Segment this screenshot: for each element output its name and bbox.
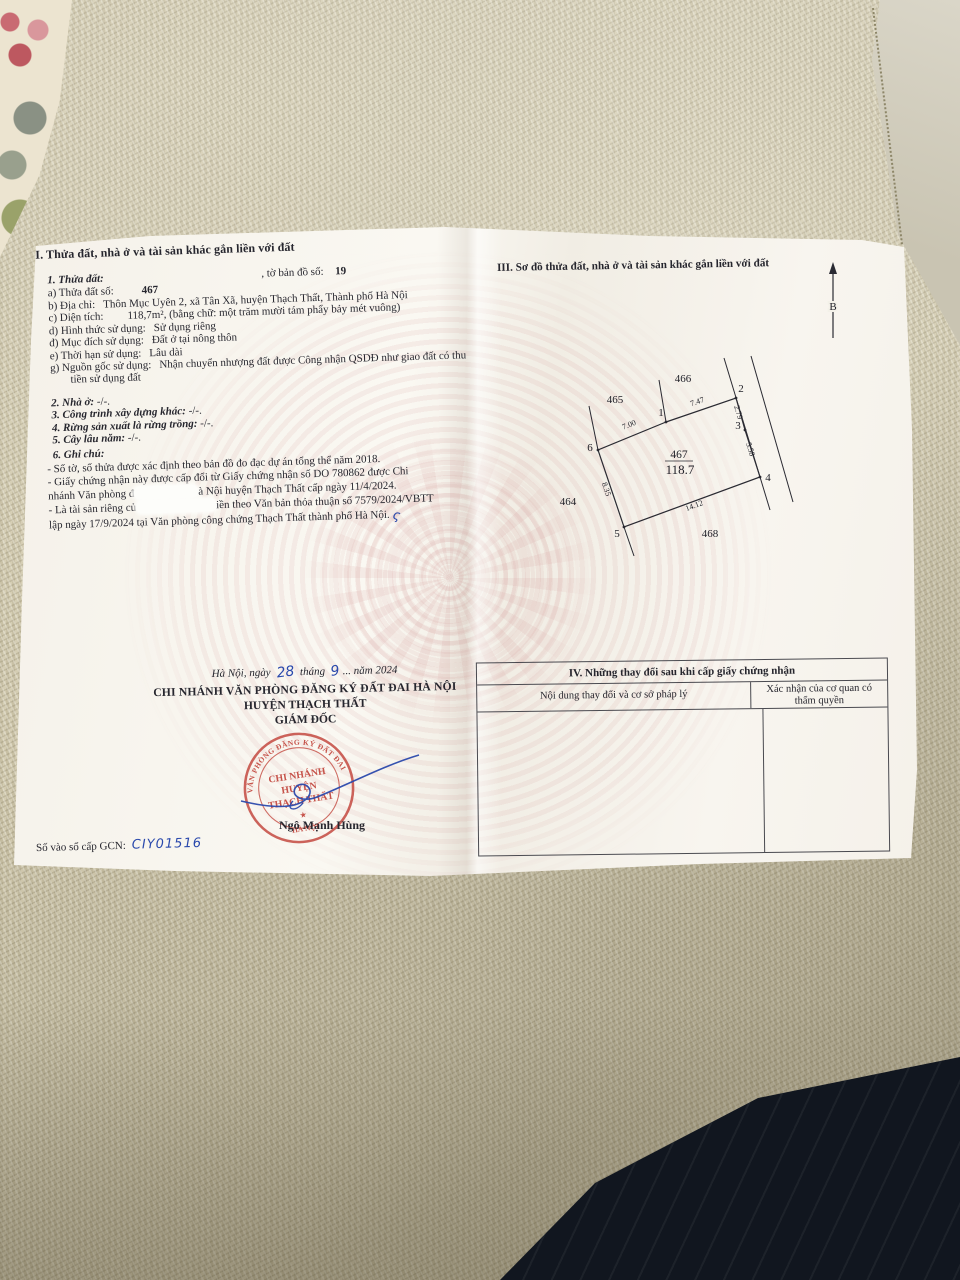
- vertex-label-3: 3: [735, 420, 741, 432]
- boundary-extension-v5: [624, 527, 634, 556]
- map-sheet-value: 19: [335, 265, 346, 278]
- adjacent-parcel-468: 468: [702, 528, 719, 540]
- parcel-fields: a) Thửa đất số:467b) Địa chỉ:Thôn Mục Uy…: [30, 275, 485, 387]
- section4-col-content: Nội dung thay đổi và cơ sở pháp lý: [477, 682, 750, 711]
- adjacent-parcel-466: 466: [675, 373, 692, 385]
- vertex-label-1: 1: [658, 407, 664, 419]
- section4-col-confirm: Xác nhận của cơ quan có thẩm quyền: [750, 681, 887, 709]
- field-value: Đất ở tại nông thôn: [152, 332, 238, 347]
- field-label: c) Diện tích:: [48, 311, 103, 325]
- note-text: nhánh Văn phòng đ: [48, 488, 135, 503]
- item-value: -/-.: [197, 417, 213, 429]
- handwritten-month: 9: [330, 663, 341, 680]
- section4-body-content-cell: [477, 709, 764, 855]
- issuance-block: Hà Nội, ngày 28 tháng 9... năm 2024 CHI …: [139, 660, 470, 730]
- note-text: - Là tài sản riêng củ: [48, 501, 136, 516]
- edge-length-6-5: 8.35: [600, 481, 613, 497]
- signer-name: Ngô Mạnh Hùng: [252, 818, 392, 833]
- section4-body-confirm-cell: [762, 707, 889, 852]
- edge-length-1-2: 7.47: [689, 395, 705, 408]
- adjacent-parcel-464: 464: [560, 496, 577, 508]
- date-mid: tháng: [297, 666, 328, 679]
- north-arrow: B: [818, 258, 848, 348]
- edge-length-5-4: 14.12: [684, 498, 704, 513]
- page-left: II. Thửa đất, nhà ở và tài sản khác gắn …: [28, 224, 489, 533]
- section3-title: III. Sơ đồ thửa đất, nhà ở và tài sản kh…: [497, 256, 837, 274]
- north-label: B: [829, 301, 836, 313]
- field-value: Lâu dài: [149, 346, 183, 359]
- parcel-area-label: 118.7: [666, 462, 695, 477]
- vertex-label-2: 2: [738, 383, 744, 395]
- date-prefix: Hà Nội, ngày: [212, 667, 274, 680]
- handwritten-day: 28: [276, 663, 296, 681]
- map-sheet-label: , tờ bản đồ số:: [261, 266, 324, 281]
- redaction-sticker: [136, 498, 216, 514]
- photo-of-land-certificate: { "certificate": { "section2": { "title"…: [0, 0, 960, 1280]
- edge-length-3-4: 5.58: [744, 441, 757, 457]
- field-label: b) Địa chỉ:: [48, 299, 95, 312]
- registry-number-line: Số vào sổ cấp GCN:CIY01516: [36, 836, 202, 855]
- registry-value-handwritten: CIY01516: [132, 836, 203, 853]
- vertex-label-5: 5: [614, 528, 620, 540]
- parcel-heading: 1. Thửa đất:: [47, 273, 104, 288]
- item-label: 2. Nhà ở:: [51, 396, 94, 409]
- item-label: 5. Cây lâu năm:: [52, 432, 125, 446]
- item-value: -/-.: [186, 405, 202, 417]
- redaction-sticker: [134, 485, 198, 500]
- edge-length-2-3: 2.79: [732, 404, 745, 420]
- adjacent-parcel-465: 465: [607, 394, 624, 406]
- director-signature: [233, 749, 425, 815]
- notes-lines: - Số tờ, số thửa được xác định theo bản …: [47, 450, 489, 532]
- cadastral-diagram: 1 2 3 4 5 6 465 466 464 468 467 118.7 7.…: [540, 350, 920, 565]
- field-value: 467: [141, 284, 158, 297]
- parcel-number-label: 467: [670, 449, 688, 461]
- road-line-outer: [751, 356, 793, 502]
- item-value: -/-.: [125, 431, 141, 443]
- vertex-label-6: 6: [587, 442, 593, 454]
- item-value: -/-.: [94, 395, 110, 407]
- edge-length-6-1: 7.00: [621, 418, 637, 432]
- vertex-label-4: 4: [765, 472, 771, 484]
- date-suffix: ... năm 2024: [343, 664, 398, 677]
- section4-body: [477, 707, 889, 855]
- section4-table: IV. Những thay đổi sau khi cấp giấy chứn…: [476, 657, 890, 856]
- north-arrow-head: [829, 262, 837, 274]
- registry-label: Số vào sổ cấp GCN:: [36, 840, 126, 854]
